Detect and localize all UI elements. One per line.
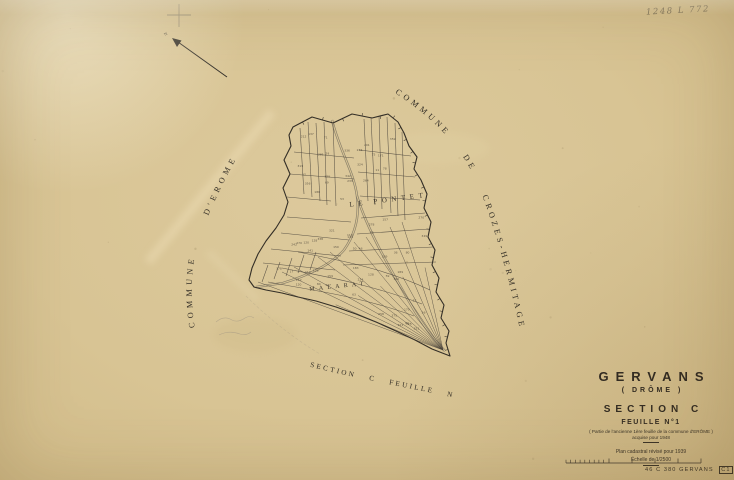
speckle — [638, 206, 640, 208]
paper-stain — [213, 318, 297, 352]
parcel-number: 128 — [313, 268, 319, 272]
parcel-number: 128 — [368, 273, 374, 277]
parcel-number: 113 — [347, 233, 353, 237]
parcel-number: 159 — [327, 274, 333, 278]
parcel-line — [357, 229, 429, 234]
parcel-number: 46 — [359, 246, 363, 250]
speckle — [108, 242, 109, 243]
parcel-number: 17 — [289, 270, 293, 274]
parcel-number: 69 — [325, 180, 329, 184]
origin-note: ( Partie de l'ancienne 1ère feuille de l… — [566, 429, 734, 434]
parcel-number: 137 — [308, 132, 314, 136]
parcel-number: 349 — [421, 234, 427, 238]
speckle — [458, 157, 460, 159]
speckle — [590, 252, 591, 253]
parcel-number: 84 — [317, 282, 321, 286]
parcel-number: 201 — [364, 143, 370, 147]
parcel-number: 70 — [370, 230, 374, 234]
boundary-tick — [437, 299, 440, 301]
speckle — [515, 270, 516, 271]
boundary-tick — [433, 272, 436, 273]
parcel-number: 183 — [353, 266, 359, 270]
parcel-number: 324 — [357, 162, 363, 166]
paper-speckles — [2, 9, 646, 460]
parcel-number: 78 — [383, 167, 387, 171]
road-line — [256, 120, 358, 287]
boundary-tick — [442, 325, 445, 327]
parcel-number: 59 — [386, 274, 390, 278]
parcel-line — [361, 213, 425, 218]
speckle — [644, 326, 645, 327]
section-label: SECTION C — [566, 404, 734, 415]
parcel-numbers: 3242013293367523331912711118617121224628… — [276, 132, 427, 331]
parcel-number: 50 — [353, 246, 357, 250]
boundary-tick — [343, 119, 344, 122]
speckle — [70, 28, 71, 29]
speckle — [489, 268, 492, 271]
parcel-line — [364, 119, 368, 201]
parcel-number: 325 — [406, 322, 412, 326]
divider — [643, 442, 659, 443]
parcel-line — [336, 305, 443, 350]
parcel-number: 338 — [317, 237, 323, 241]
parcel-number: 258 — [378, 312, 384, 316]
label-commune-crozes-hermitage: COMMUNE DE CROZES-HERMITAGE — [394, 87, 527, 330]
speckle — [34, 139, 36, 141]
department-name: ( DRÔME ) — [566, 387, 734, 394]
title-block: GERVANS ( DRÔME ) SECTION C FEUILLE N°1 … — [566, 369, 734, 466]
boundary-tick — [303, 122, 304, 125]
parcel-number: 141 — [307, 248, 313, 252]
sheet-label: FEUILLE N°1 — [566, 419, 734, 426]
boundary-tick — [429, 244, 432, 245]
paper-crease — [148, 112, 272, 262]
parcel-number: 170 — [404, 308, 410, 312]
registration-cross-icon — [167, 4, 191, 27]
paper-stain — [380, 132, 490, 164]
parcel-number: 375 — [391, 313, 397, 317]
parcel-number: 171 — [378, 153, 384, 157]
parcel-line — [262, 265, 268, 282]
parcel-number: 356 — [305, 181, 311, 185]
speckle — [549, 316, 551, 318]
scale-note: Échelle de 1/2500 — [566, 457, 734, 463]
parcel-number: 359 — [390, 137, 396, 141]
parcel-number: 233 — [347, 179, 353, 183]
boundary-tick — [445, 336, 448, 337]
parcel-number: 342 — [345, 174, 351, 178]
parcel-number: 320 — [393, 277, 399, 281]
parcel-line — [379, 116, 382, 209]
parcel-number: 56 — [422, 311, 426, 315]
speckle — [488, 248, 490, 250]
speckle — [502, 272, 504, 274]
archive-stamp-text: 46 C 380 GERVANS — [645, 467, 714, 473]
parcel-number: 114 — [305, 270, 311, 274]
speckle — [336, 203, 337, 204]
boundary-tick — [440, 311, 443, 312]
boundary-tick — [445, 350, 448, 351]
parcel-number: 270 — [296, 241, 302, 245]
parcel-number: 270 — [418, 216, 424, 220]
parcel-number: 339 — [382, 255, 388, 259]
parcel-line — [333, 124, 336, 206]
speckle — [2, 70, 4, 72]
parcel-number: 11 — [375, 168, 379, 172]
speckle — [532, 458, 534, 460]
parcel-number: 186 — [314, 190, 320, 194]
parcel-number: 150 — [333, 245, 339, 249]
boundary-tick — [398, 128, 401, 129]
speckle — [362, 359, 364, 361]
speckle — [291, 162, 292, 163]
parcel-number: 63 — [352, 293, 356, 297]
parcel-number: 36 — [394, 250, 398, 254]
boundary-tick — [421, 187, 424, 188]
parcel-number: 189 — [397, 270, 403, 274]
parcel-line — [380, 286, 443, 350]
parcel-number: 157 — [382, 218, 388, 222]
parcel-number: 75 — [372, 152, 376, 156]
speckle — [519, 69, 520, 70]
parcel-number: 120 — [296, 283, 302, 287]
parcel-number: 80 — [406, 251, 410, 255]
divider — [643, 465, 659, 466]
parcel-number: 53 — [340, 197, 344, 201]
parcel-number: 120 — [303, 240, 309, 244]
parcel-number: 378 — [276, 267, 282, 271]
parcel-number: 224 — [358, 278, 364, 282]
label-lieu-dit-le-pontet: LE PONTET — [349, 191, 428, 209]
parcel-number: 329 — [324, 175, 330, 179]
speckle — [562, 147, 564, 149]
parcel-line — [371, 117, 375, 205]
parcel-number: 71 — [324, 135, 328, 139]
speckle — [525, 380, 527, 382]
acquisition-note: acquise pour 1948 — [566, 435, 734, 440]
parcel-number: 321 — [398, 323, 404, 327]
boundary-tick — [393, 116, 395, 118]
parcel-number: 264 — [363, 179, 369, 183]
boundary-tick — [380, 116, 381, 119]
paper-stains — [2, 9, 646, 460]
archive-stamp: 46 C 380 GERVANSC1 — [645, 467, 733, 473]
parcel-number: 12 — [302, 172, 306, 176]
parcel-number: 246 — [357, 148, 363, 152]
speckle — [401, 310, 403, 312]
parcel-line — [287, 217, 351, 222]
parcel-number: 281 — [318, 152, 324, 156]
speckle — [393, 97, 395, 99]
parcel-number: 336 — [344, 148, 350, 152]
boundary-tick — [425, 215, 428, 216]
parcel-number: 321 — [329, 229, 335, 233]
parcel-number: 27 — [413, 299, 417, 303]
parcel-number: 112 — [296, 278, 302, 282]
parcel-number: 319 — [297, 164, 303, 168]
speckle — [602, 26, 603, 27]
boundary-tick — [415, 175, 418, 177]
speckle — [268, 9, 269, 10]
archive-stamp-ref: C1 — [719, 466, 733, 474]
revision-note: Plan cadastral révisé pour 1939 — [566, 449, 734, 455]
commune-name: GERVANS — [566, 369, 734, 384]
parcel-number: 212 — [301, 135, 307, 139]
boundary-tick — [323, 117, 324, 120]
north-arrow-icon: N — [163, 31, 227, 77]
parcel-number: 29 — [325, 152, 329, 156]
parcel-line — [287, 197, 331, 201]
parcel-number: 278 — [369, 223, 375, 227]
parcel-line — [298, 255, 304, 273]
cadastral-map-sheet: N 32420132933675233319127111186171212246… — [0, 0, 734, 480]
road-line-fill — [256, 120, 358, 287]
svg-text:N: N — [163, 31, 169, 37]
parcel-number: 311 — [414, 327, 420, 331]
